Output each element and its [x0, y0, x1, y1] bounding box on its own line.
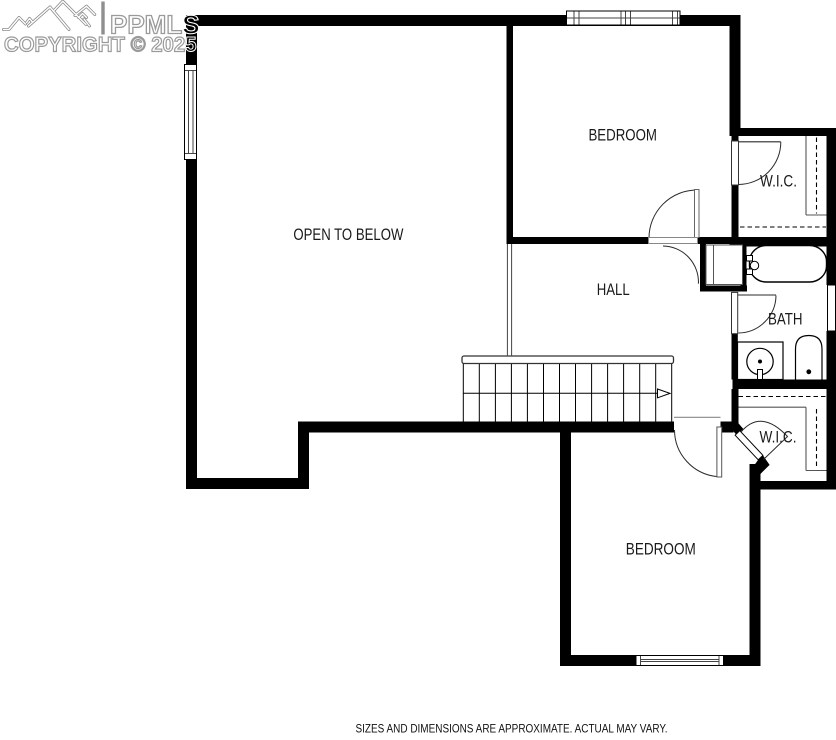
svg-text:W.I.C.: W.I.C.	[760, 427, 797, 446]
svg-text:BEDROOM: BEDROOM	[588, 125, 657, 144]
svg-text:W.I.C.: W.I.C.	[760, 172, 797, 191]
svg-text:HALL: HALL	[597, 280, 630, 299]
svg-text:SIZES AND DIMENSIONS ARE APPRO: SIZES AND DIMENSIONS ARE APPROXIMATE. AC…	[356, 724, 668, 736]
svg-text:COPYRIGHT © 2025: COPYRIGHT © 2025	[4, 33, 197, 56]
svg-text:5: 5	[185, 33, 197, 56]
svg-text:BATH: BATH	[768, 310, 803, 329]
svg-text:OPEN TO BELOW: OPEN TO BELOW	[293, 225, 403, 244]
svg-text:BEDROOM: BEDROOM	[626, 539, 696, 558]
